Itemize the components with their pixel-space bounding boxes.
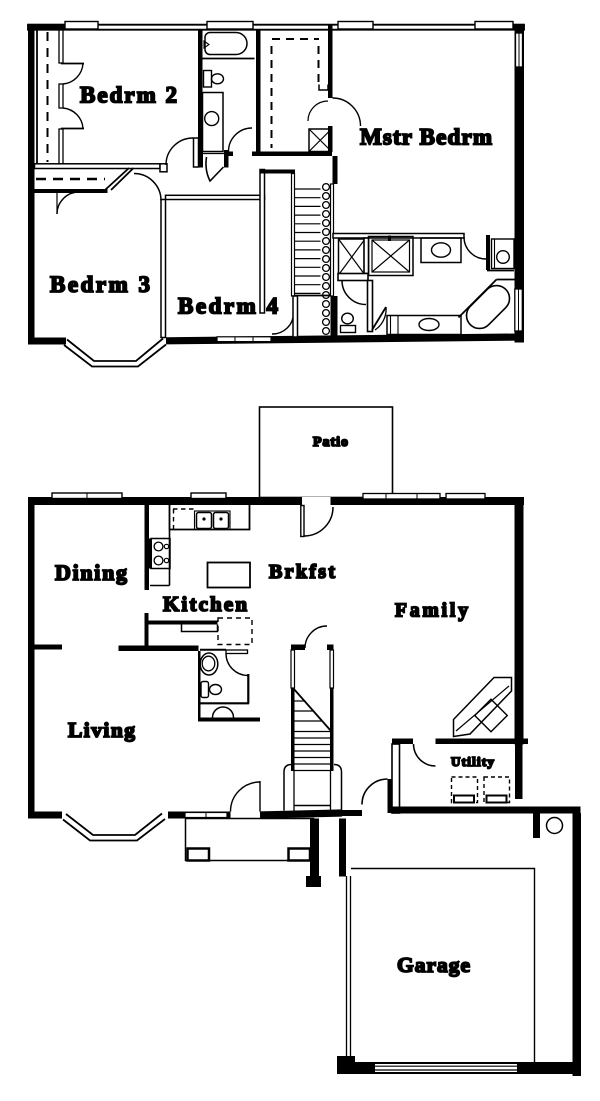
svg-text:Mstr Bedrm: Mstr Bedrm [360, 125, 492, 150]
svg-text:Dining: Dining [55, 560, 127, 585]
svg-text:Brkfst: Brkfst [269, 561, 335, 583]
svg-text:Kitchen: Kitchen [163, 592, 247, 616]
svg-text:Utility: Utility [451, 754, 495, 769]
svg-text:Living: Living [68, 718, 135, 742]
svg-text:Bedrm 4: Bedrm 4 [178, 294, 279, 319]
svg-text:Bedrm 3: Bedrm 3 [50, 272, 150, 297]
svg-text:Bedrm 2: Bedrm 2 [80, 83, 177, 108]
svg-text:Patio: Patio [313, 435, 348, 450]
svg-text:Garage: Garage [397, 953, 470, 977]
